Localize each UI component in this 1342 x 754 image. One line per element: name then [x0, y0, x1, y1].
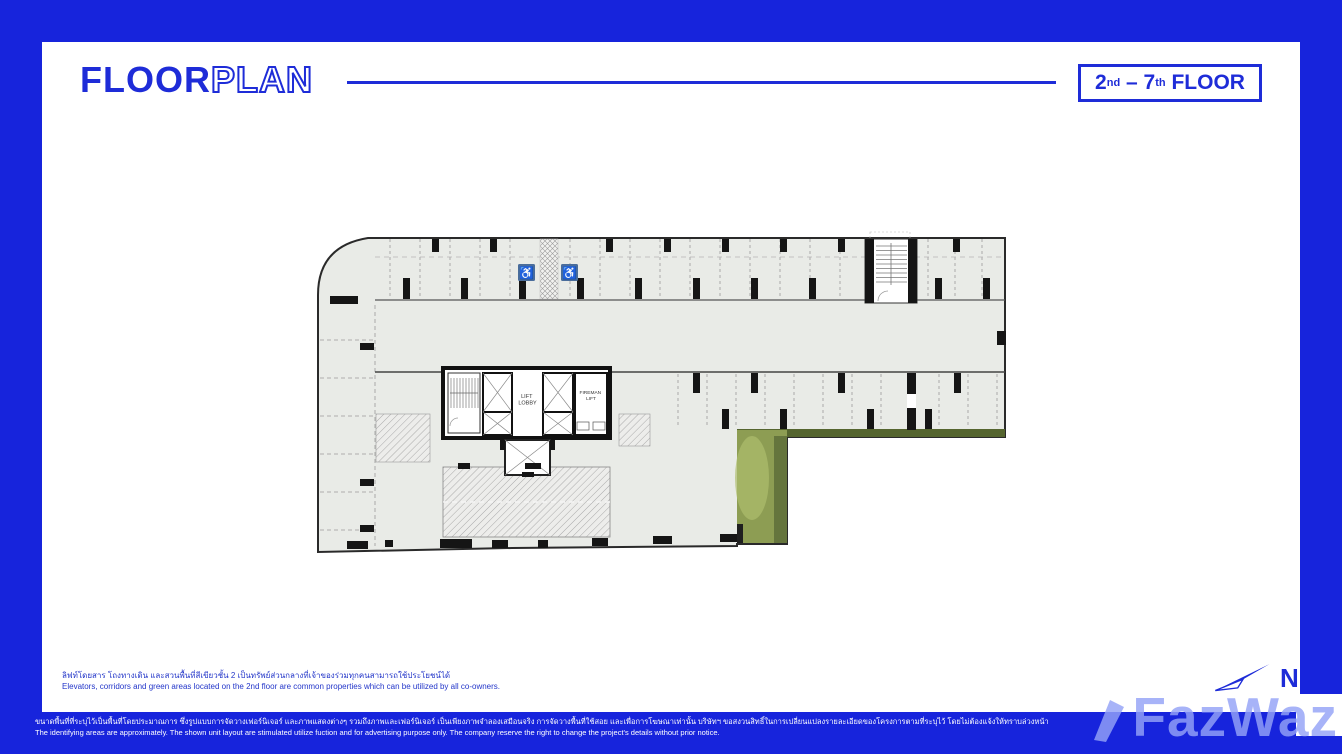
hatched-shaft	[540, 239, 558, 299]
footer-thai: ขนาดพื้นที่ที่ระบุไว้เป็นพื้นที่โดยประมา…	[35, 716, 1049, 727]
common-area-note: ลิฟท์โดยสาร โถงทางเดิน และสวนพื้นที่สีเข…	[62, 670, 500, 692]
secondary-lift	[500, 440, 555, 477]
page-title-outline: PLAN	[211, 59, 313, 100]
compass: N	[1210, 654, 1310, 702]
lift-shaft	[543, 373, 573, 435]
fireman-lift-room: FIREMAN LIFT	[575, 373, 607, 435]
note-thai: ลิฟท์โดยสาร โถงทางเดิน และสวนพื้นที่สีเข…	[62, 670, 500, 681]
accessible-parking-icon: ♿	[561, 264, 578, 281]
footer-english: The identifying areas are approximately.…	[35, 727, 1049, 738]
title-rule	[347, 81, 1056, 84]
north-label: N	[1280, 663, 1299, 694]
lift-shaft	[483, 373, 512, 435]
floor-plan: ♿ ♿	[310, 226, 1010, 566]
corner-patch	[1296, 694, 1342, 736]
note-english: Elevators, corridors and green areas loc…	[62, 681, 500, 692]
floor-plan-svg: ♿ ♿	[310, 226, 1010, 566]
page-title: FLOORPLAN	[80, 60, 313, 100]
floorplan-page: { "colors": { "frame_blue": "#1724DC", "…	[0, 0, 1342, 754]
green-garden-area	[735, 429, 1005, 543]
svg-text:♿: ♿	[519, 266, 534, 280]
ramp-hatch-zone	[443, 467, 610, 537]
svg-text:♿: ♿	[562, 266, 577, 280]
accessible-parking-icon: ♿	[518, 264, 535, 281]
badge-suffix: FLOOR	[1166, 71, 1245, 95]
hatch-zone	[376, 414, 430, 462]
badge-to: 7	[1144, 71, 1156, 95]
stairwell-top-right	[865, 232, 917, 303]
page-title-solid: FLOOR	[80, 59, 211, 100]
lift-core: LIFT LOBBY FIREMAN LIFT	[443, 368, 610, 438]
north-arrow-icon	[1210, 655, 1276, 701]
badge-separator: –	[1120, 71, 1143, 95]
footer-disclaimer: ขนาดพื้นที่ที่ระบุไว้เป็นพื้นที่โดยประมา…	[35, 716, 1049, 738]
badge-from: 2	[1095, 71, 1107, 95]
content-panel: FLOORPLAN 2nd – 7th FLOOR	[42, 42, 1300, 712]
hatch-zone	[619, 414, 650, 446]
wall-fixture	[997, 331, 1006, 345]
floor-range-badge: 2nd – 7th FLOOR	[1078, 64, 1262, 102]
core-stairs	[448, 373, 480, 433]
